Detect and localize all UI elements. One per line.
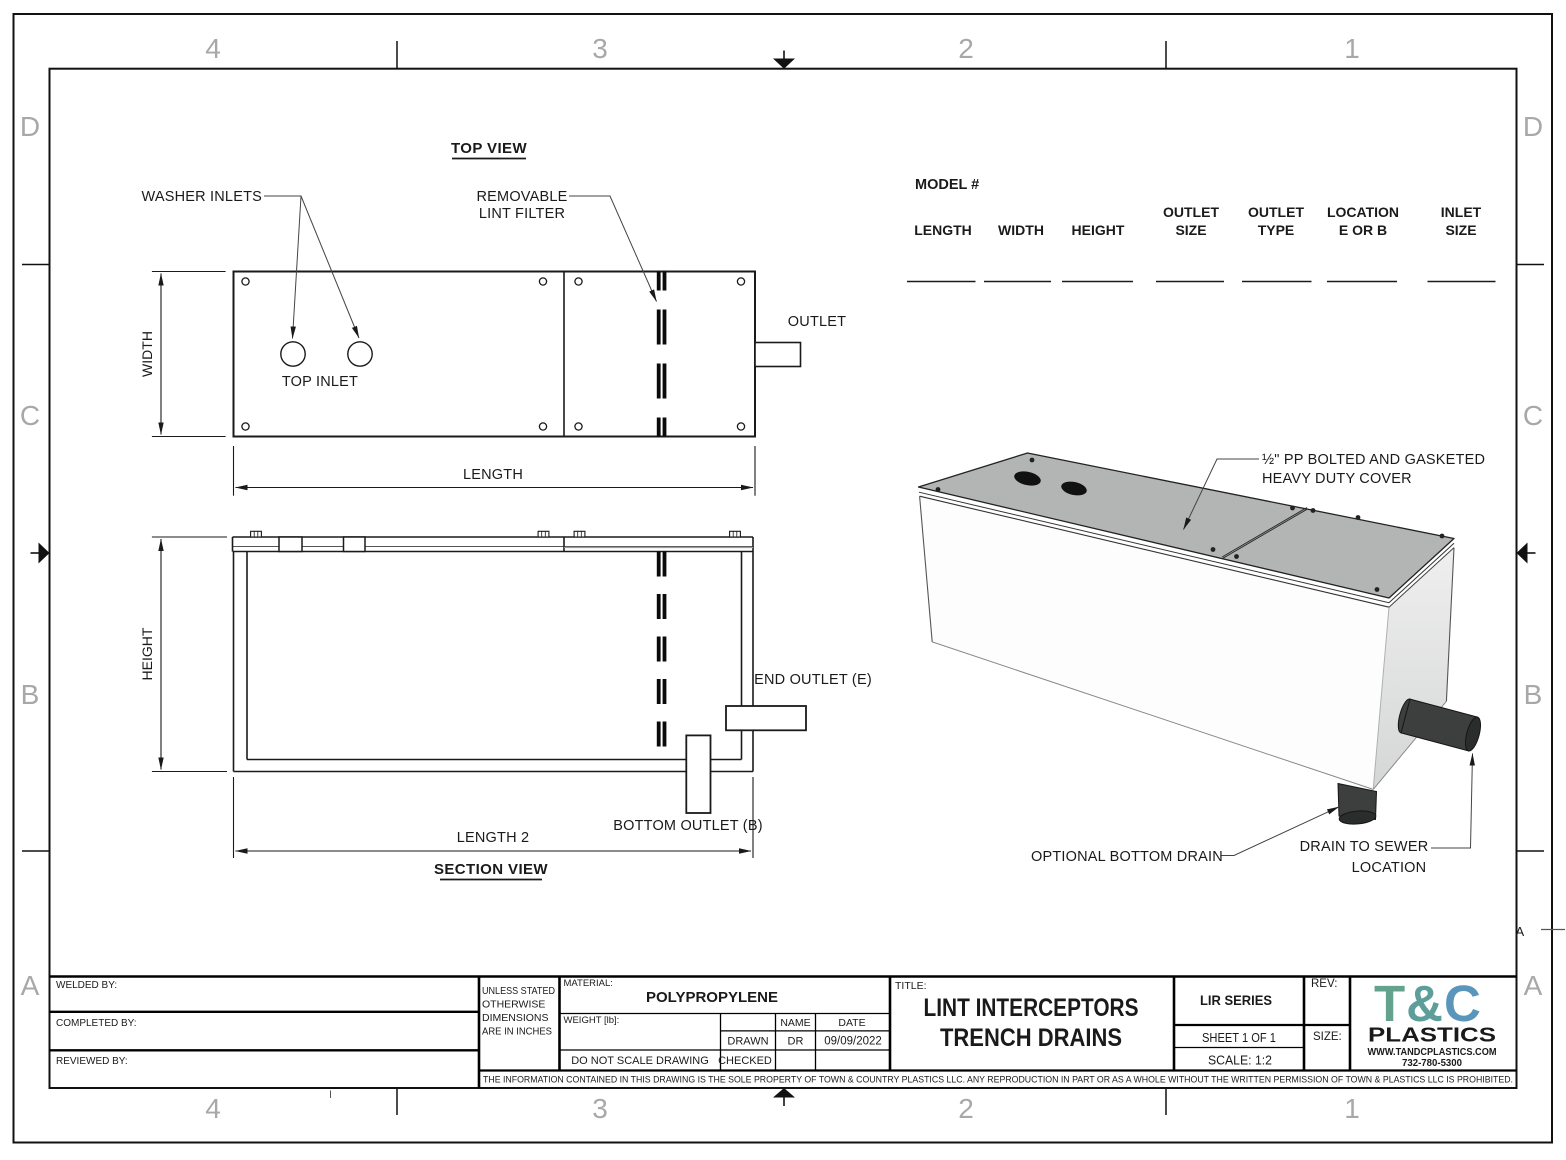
svg-text:LINT INTERCEPTORS: LINT INTERCEPTORS bbox=[924, 994, 1139, 1022]
svg-text:TOP VIEW: TOP VIEW bbox=[451, 140, 527, 157]
svg-text:WIDTH: WIDTH bbox=[139, 331, 155, 377]
svg-text:SIZE: SIZE bbox=[1175, 222, 1206, 238]
svg-text:09/09/2022: 09/09/2022 bbox=[824, 1036, 882, 1048]
svg-text:PLASTICS: PLASTICS bbox=[1368, 1025, 1496, 1047]
svg-text:2: 2 bbox=[958, 1093, 974, 1124]
svg-text:TOP INLET: TOP INLET bbox=[282, 374, 358, 390]
svg-text:B: B bbox=[21, 679, 40, 710]
svg-text:LENGTH: LENGTH bbox=[914, 222, 972, 238]
svg-text:CHECKED: CHECKED bbox=[718, 1055, 772, 1067]
svg-text:DRAWN: DRAWN bbox=[727, 1036, 768, 1048]
svg-text:WASHER INLETS: WASHER INLETS bbox=[142, 189, 263, 205]
svg-text:WIDTH: WIDTH bbox=[998, 222, 1044, 238]
svg-text:4: 4 bbox=[205, 33, 221, 64]
svg-text:INLET: INLET bbox=[1441, 204, 1482, 220]
svg-text:½" PP BOLTED AND GASKETED: ½" PP BOLTED AND GASKETED bbox=[1262, 452, 1485, 468]
svg-text:DO NOT SCALE DRAWING: DO NOT SCALE DRAWING bbox=[571, 1055, 709, 1067]
svg-text:ARE IN INCHES: ARE IN INCHES bbox=[482, 1026, 552, 1038]
svg-text:D: D bbox=[1523, 111, 1543, 142]
svg-text:UNLESS STATED: UNLESS STATED bbox=[482, 985, 555, 997]
svg-text:DATE: DATE bbox=[838, 1017, 865, 1029]
svg-text:LOCATION: LOCATION bbox=[1352, 860, 1427, 876]
svg-text:B: B bbox=[1524, 679, 1543, 710]
svg-text:OUTLET: OUTLET bbox=[1163, 204, 1219, 220]
svg-text:THE INFORMATION CONTAINED IN T: THE INFORMATION CONTAINED IN THIS DRAWIN… bbox=[483, 1075, 1513, 1086]
svg-text:A: A bbox=[1524, 970, 1543, 1001]
svg-text:4: 4 bbox=[205, 1093, 221, 1124]
svg-text:LINT FILTER: LINT FILTER bbox=[479, 206, 565, 222]
svg-text:2: 2 bbox=[958, 33, 974, 64]
svg-text:1: 1 bbox=[1344, 1093, 1360, 1124]
svg-text:WELDED BY:: WELDED BY: bbox=[56, 980, 117, 991]
svg-text:D: D bbox=[20, 111, 40, 142]
svg-text:DRAIN TO SEWER: DRAIN TO SEWER bbox=[1300, 839, 1429, 855]
svg-text:SIZE: SIZE bbox=[1445, 222, 1476, 238]
svg-text:C: C bbox=[20, 400, 40, 431]
svg-text:BOTTOM OUTLET (B): BOTTOM OUTLET (B) bbox=[613, 818, 762, 834]
svg-text:E OR B: E OR B bbox=[1339, 222, 1387, 238]
svg-text:SHEET 1 OF 1: SHEET 1 OF 1 bbox=[1202, 1030, 1276, 1045]
svg-text:TITLE:: TITLE: bbox=[895, 980, 927, 992]
svg-text:3: 3 bbox=[592, 33, 608, 64]
svg-text:LENGTH 2: LENGTH 2 bbox=[457, 830, 530, 846]
svg-text:SIZE:: SIZE: bbox=[1313, 1031, 1342, 1043]
svg-text:DR: DR bbox=[788, 1036, 804, 1048]
svg-text:SCALE: 1:2: SCALE: 1:2 bbox=[1208, 1053, 1272, 1068]
svg-text:OPTIONAL BOTTOM DRAIN: OPTIONAL BOTTOM DRAIN bbox=[1031, 849, 1223, 865]
svg-text:HEAVY DUTY COVER: HEAVY DUTY COVER bbox=[1262, 471, 1412, 487]
svg-text:1: 1 bbox=[1344, 33, 1360, 64]
svg-text:POLYPROPYLENE: POLYPROPYLENE bbox=[646, 989, 778, 1006]
svg-text:MODEL #: MODEL # bbox=[915, 177, 979, 193]
svg-text:SECTION VIEW: SECTION VIEW bbox=[434, 861, 548, 878]
svg-text:MATERIAL:: MATERIAL: bbox=[564, 978, 613, 989]
svg-text:3: 3 bbox=[592, 1093, 608, 1124]
svg-text:LOCATION: LOCATION bbox=[1327, 204, 1399, 220]
svg-text:END OUTLET (E): END OUTLET (E) bbox=[754, 672, 872, 688]
svg-text:DIMENSIONS: DIMENSIONS bbox=[482, 1012, 549, 1024]
svg-text:HEIGHT: HEIGHT bbox=[1072, 222, 1125, 238]
svg-text:LIR SERIES: LIR SERIES bbox=[1200, 992, 1272, 1008]
svg-text:OUTLET: OUTLET bbox=[788, 314, 846, 330]
svg-text:LENGTH: LENGTH bbox=[463, 467, 523, 483]
svg-text:C: C bbox=[1523, 400, 1543, 431]
svg-text:HEIGHT: HEIGHT bbox=[139, 627, 155, 680]
svg-text:REV:: REV: bbox=[1311, 978, 1337, 990]
svg-text:NAME: NAME bbox=[780, 1017, 810, 1029]
svg-text:TYPE: TYPE bbox=[1258, 222, 1295, 238]
svg-text:REVIEWED BY:: REVIEWED BY: bbox=[56, 1056, 128, 1067]
svg-text:TRENCH DRAINS: TRENCH DRAINS bbox=[940, 1024, 1122, 1052]
svg-text:REMOVABLE: REMOVABLE bbox=[477, 189, 568, 205]
svg-text:A: A bbox=[1516, 924, 1525, 939]
svg-text:WEIGHT [lb]:: WEIGHT [lb]: bbox=[564, 1015, 620, 1026]
svg-text:732-780-5300: 732-780-5300 bbox=[1402, 1057, 1462, 1069]
svg-text:A: A bbox=[21, 970, 40, 1001]
svg-text:T&C: T&C bbox=[1374, 975, 1482, 1032]
svg-text:OUTLET: OUTLET bbox=[1248, 204, 1304, 220]
svg-text:OTHERWISE: OTHERWISE bbox=[482, 999, 545, 1011]
svg-text:COMPLETED BY:: COMPLETED BY: bbox=[56, 1018, 137, 1029]
